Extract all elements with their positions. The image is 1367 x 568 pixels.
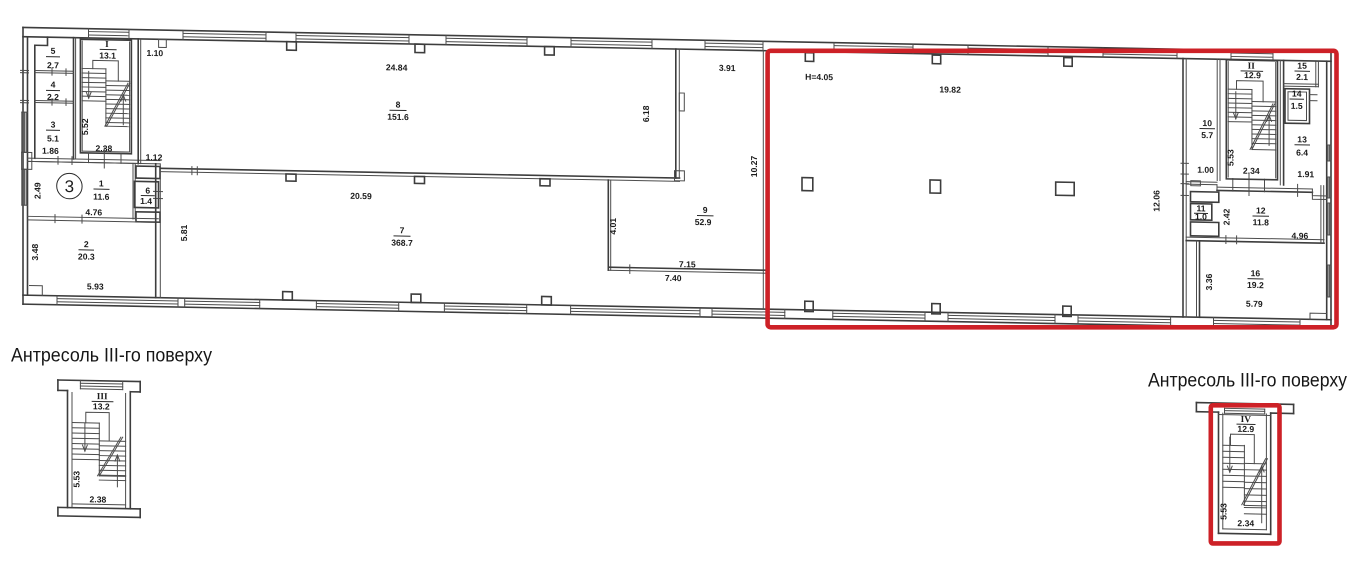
svg-text:7.40: 7.40 (665, 273, 682, 283)
svg-text:12.06: 12.06 (1151, 190, 1161, 212)
svg-text:1.5: 1.5 (1291, 101, 1303, 111)
svg-text:3.48: 3.48 (30, 243, 40, 260)
svg-text:4.76: 4.76 (85, 207, 102, 217)
svg-text:10: 10 (1202, 118, 1212, 128)
svg-text:I: I (105, 40, 109, 50)
svg-text:5.93: 5.93 (87, 281, 104, 291)
svg-text:20.59: 20.59 (350, 191, 372, 201)
svg-text:3: 3 (65, 177, 74, 196)
svg-text:11.6: 11.6 (93, 192, 109, 202)
svg-text:1: 1 (99, 178, 104, 188)
svg-text:10.27: 10.27 (749, 155, 759, 177)
svg-text:Антресоль III-го поверху: Антресоль III-го поверху (11, 346, 212, 367)
svg-text:6: 6 (145, 186, 150, 196)
svg-text:12.9: 12.9 (1237, 424, 1254, 434)
svg-text:8: 8 (396, 100, 401, 110)
svg-text:13.1: 13.1 (99, 50, 116, 60)
svg-text:H=4.05: H=4.05 (805, 72, 833, 83)
svg-text:13: 13 (1297, 134, 1307, 144)
svg-text:4: 4 (51, 79, 56, 89)
svg-text:1.00: 1.00 (1197, 165, 1214, 175)
svg-text:2.38: 2.38 (90, 494, 107, 504)
svg-text:11.8: 11.8 (1253, 217, 1269, 227)
svg-text:1.91: 1.91 (1297, 169, 1314, 179)
svg-text:2.42: 2.42 (1221, 208, 1231, 225)
svg-text:52.9: 52.9 (695, 217, 712, 227)
svg-text:2.34: 2.34 (1243, 166, 1260, 176)
svg-text:5.7: 5.7 (1201, 130, 1213, 140)
svg-text:9: 9 (703, 205, 708, 215)
svg-text:1.10: 1.10 (147, 48, 164, 58)
svg-text:13.2: 13.2 (93, 401, 110, 411)
svg-text:2.49: 2.49 (33, 182, 43, 199)
svg-text:3.36: 3.36 (1204, 273, 1214, 290)
svg-text:Антресоль III-го поверху: Антресоль III-го поверху (1148, 370, 1347, 391)
svg-text:1.0: 1.0 (1195, 211, 1207, 221)
svg-text:2.7: 2.7 (47, 60, 59, 70)
svg-text:1.12: 1.12 (146, 152, 163, 162)
svg-text:368.7: 368.7 (391, 238, 413, 248)
svg-text:15: 15 (1297, 61, 1307, 71)
svg-text:3.91: 3.91 (719, 63, 736, 73)
svg-text:4.01: 4.01 (608, 218, 618, 235)
svg-text:7.15: 7.15 (679, 259, 696, 269)
svg-text:16: 16 (1251, 268, 1261, 278)
svg-text:7: 7 (400, 225, 405, 235)
svg-text:20.3: 20.3 (78, 251, 95, 261)
svg-text:14: 14 (1292, 88, 1302, 98)
svg-text:19.2: 19.2 (1247, 280, 1264, 290)
svg-text:5.53: 5.53 (72, 471, 82, 488)
svg-text:6.4: 6.4 (1296, 147, 1308, 157)
svg-text:6.18: 6.18 (641, 105, 651, 122)
svg-text:1.86: 1.86 (42, 146, 59, 156)
svg-text:19.82: 19.82 (939, 84, 961, 94)
svg-text:12: 12 (1256, 205, 1266, 215)
svg-text:2.1: 2.1 (1296, 72, 1308, 82)
svg-text:5.79: 5.79 (1246, 299, 1263, 309)
svg-text:5.53: 5.53 (1225, 149, 1235, 166)
svg-text:5: 5 (51, 46, 56, 56)
svg-text:12.9: 12.9 (1244, 70, 1261, 80)
svg-text:2.34: 2.34 (1237, 518, 1254, 528)
svg-text:5.81: 5.81 (179, 224, 189, 241)
svg-text:24.84: 24.84 (386, 62, 408, 72)
svg-text:1.4: 1.4 (140, 196, 152, 206)
svg-text:2: 2 (84, 239, 89, 249)
svg-text:5.53: 5.53 (1218, 503, 1228, 520)
svg-text:5.52: 5.52 (80, 118, 90, 135)
svg-text:5.1: 5.1 (47, 133, 59, 143)
svg-text:151.6: 151.6 (387, 112, 409, 122)
svg-text:3: 3 (51, 119, 56, 129)
